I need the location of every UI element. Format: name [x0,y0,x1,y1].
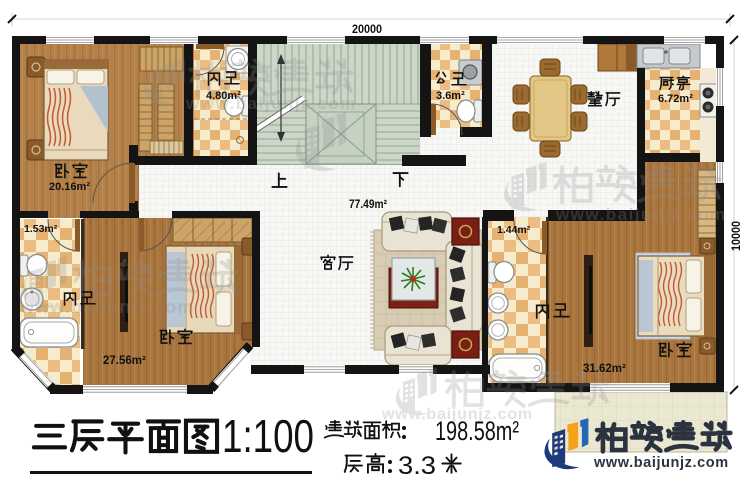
svg-text:www.baijunjz.com: www.baijunjz.com [19,297,195,317]
svg-text:198.58m²: 198.58m² [435,416,519,446]
svg-text:77.49m²: 77.49m² [349,197,387,211]
svg-text:20000: 20000 [352,22,382,36]
svg-text:6.72m²: 6.72m² [658,93,693,105]
svg-text:www.baijunjz.com: www.baijunjz.com [593,455,729,471]
svg-text:1:100: 1:100 [222,410,314,462]
svg-text:1.44m²: 1.44m² [497,224,531,236]
svg-text:20.16m²: 20.16m² [49,181,90,193]
svg-text:4.80m²: 4.80m² [206,90,241,102]
svg-text:10000: 10000 [729,221,743,251]
svg-text:www.baijunjz.com: www.baijunjz.com [555,205,727,224]
svg-text:3.3: 3.3 [398,452,436,480]
svg-text:31.62m²: 31.62m² [583,363,626,375]
svg-text:27.56m²: 27.56m² [103,355,146,367]
svg-text:3.6m²: 3.6m² [436,90,465,102]
svg-text:1.53m²: 1.53m² [24,223,58,235]
